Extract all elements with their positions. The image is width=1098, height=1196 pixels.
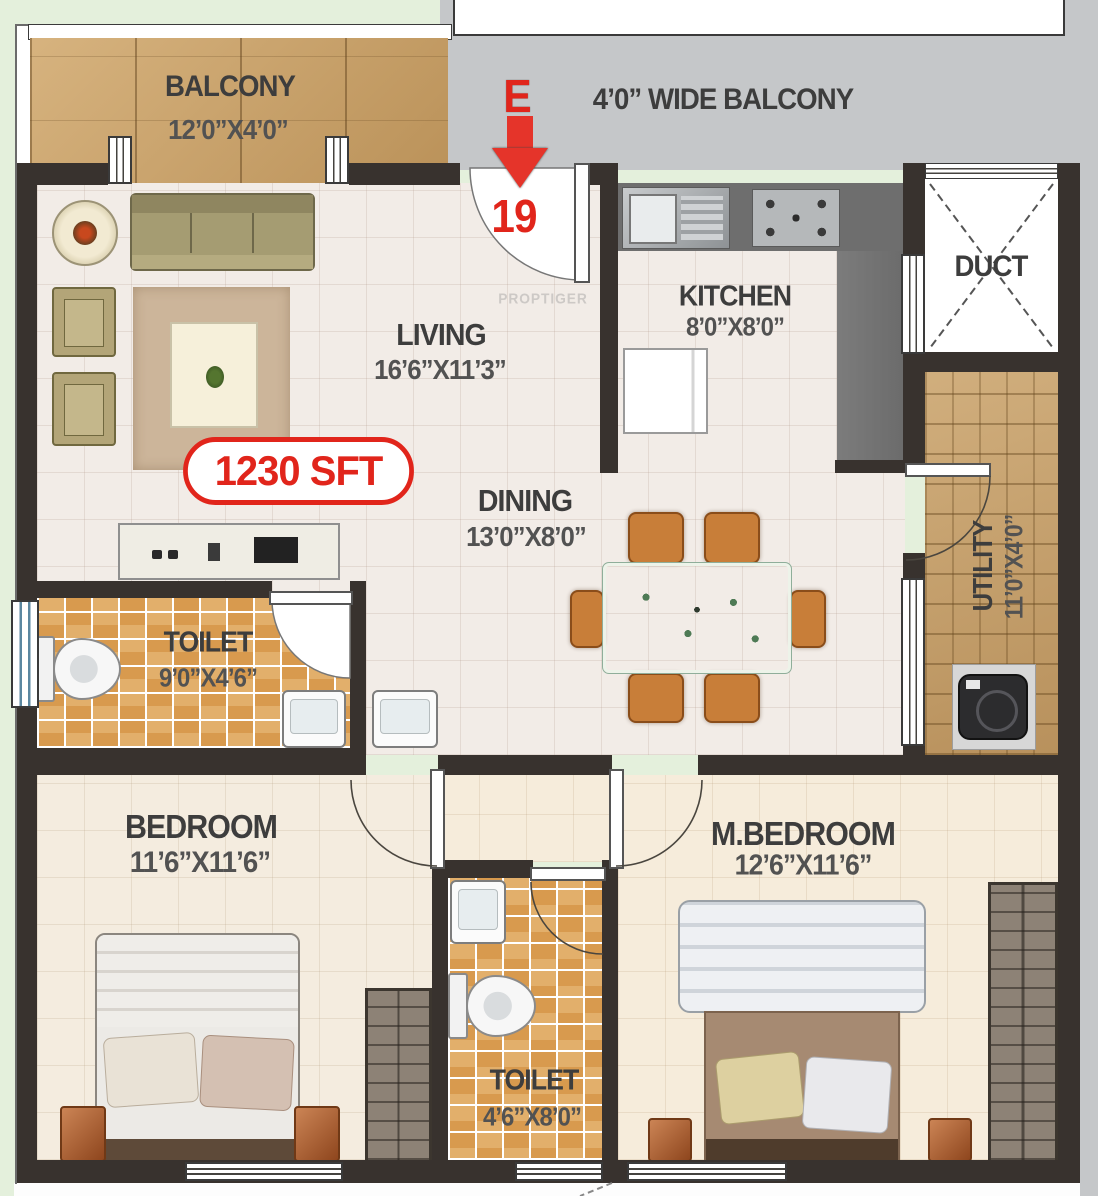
wide-balcony-label: 4’0” WIDE BALCONY xyxy=(593,83,853,117)
area-badge-text: 1230 SFT xyxy=(215,447,383,495)
mbedroom-dims: 12’6”X11’6” xyxy=(735,850,872,883)
entrance-door-leaf xyxy=(575,164,589,282)
balcony-dims: 12’0”X4’0” xyxy=(168,114,288,146)
dining-dims: 13’0”X8’0” xyxy=(466,521,586,553)
bedroom-door-leaf xyxy=(431,770,444,868)
duct-label: DUCT xyxy=(955,250,1028,284)
toilet2-door-leaf xyxy=(531,868,605,880)
utility-door-leaf xyxy=(906,464,990,476)
balcony-label: BALCONY xyxy=(165,70,295,104)
bedroom-label: BEDROOM xyxy=(125,808,277,846)
dining-label: DINING xyxy=(478,483,572,519)
unit-number-label: 19 xyxy=(491,189,536,243)
mbedroom-door-arc xyxy=(616,780,702,866)
mbedroom-door-leaf xyxy=(610,770,623,868)
kitchen-dims: 8’0”X8’0” xyxy=(686,312,784,343)
pointer-dashed-line xyxy=(580,1183,612,1196)
mbedroom-label: M.BEDROOM xyxy=(711,815,895,853)
toilet-common-dims: 9’0”X4’6” xyxy=(159,663,257,694)
toilet-master-label: TOILET xyxy=(490,1065,579,1098)
toilet2-door-arc xyxy=(531,882,603,954)
living-label: LIVING xyxy=(396,317,486,353)
entrance-direction-label: E xyxy=(503,69,530,123)
doors-overlay xyxy=(0,0,1098,1196)
toilet-common-label: TOILET xyxy=(164,627,253,660)
utility-dims: 11’0”X4’0” xyxy=(1001,515,1030,620)
area-badge: 1230 SFT xyxy=(183,437,414,505)
kitchen-label: KITCHEN xyxy=(679,281,791,314)
watermark: PROPTIGER xyxy=(498,291,588,308)
living-dims: 16’6”X11’3” xyxy=(374,354,506,386)
toilet-master-dims: 4’6”X8’0” xyxy=(483,1102,581,1133)
entrance-arrow-head xyxy=(492,148,548,188)
toilet-door-leaf xyxy=(270,592,352,604)
floor-plan: 1230 SFT BALCONY 12’0”X4’0” 4’0” WIDE BA… xyxy=(0,0,1098,1196)
toilet-door-swing xyxy=(272,600,350,678)
bedroom-door-arc xyxy=(351,780,437,866)
bedroom-dims: 11’6”X11’6” xyxy=(130,846,270,880)
utility-label: UTILITY xyxy=(967,521,999,612)
